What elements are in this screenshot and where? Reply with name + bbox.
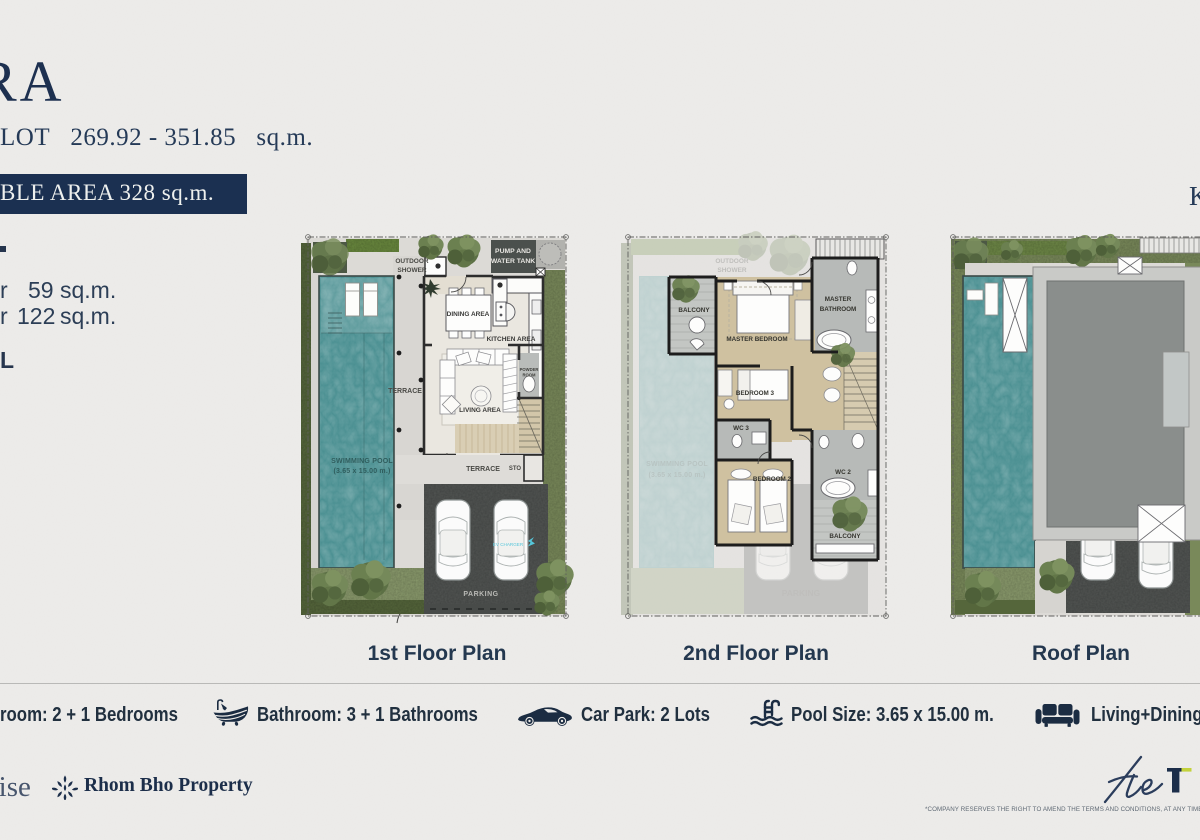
svg-text:BEDROOM 2: BEDROOM 2 — [753, 476, 792, 483]
svg-text:ROOM: ROOM — [522, 373, 536, 378]
svg-text:OUTDOOR: OUTDOOR — [715, 258, 749, 265]
svg-text:WC 3: WC 3 — [733, 425, 749, 432]
svg-text:MASTER: MASTER — [825, 296, 852, 303]
svg-text:SWIMMING POOL: SWIMMING POOL — [646, 461, 708, 468]
svg-text:PARKING: PARKING — [782, 588, 821, 598]
svg-text:(3.65 x 15.00 m.): (3.65 x 15.00 m.) — [648, 472, 705, 479]
svg-text:POWDER: POWDER — [520, 367, 539, 372]
svg-text:MASTER BEDROOM: MASTER BEDROOM — [726, 336, 787, 343]
svg-text:LIVING AREA: LIVING AREA — [459, 407, 501, 414]
svg-text:OUTDOOR: OUTDOOR — [395, 258, 429, 265]
svg-text:SWIMMING POOL: SWIMMING POOL — [331, 458, 393, 465]
svg-text:EV CHARGER: EV CHARGER — [493, 542, 524, 547]
svg-text:SHOWER: SHOWER — [717, 267, 747, 274]
svg-text:(3.65 x 15.00 m.): (3.65 x 15.00 m.) — [333, 468, 390, 475]
svg-text:WATER TANK: WATER TANK — [491, 258, 535, 265]
svg-text:STO: STO — [509, 466, 522, 472]
svg-text:DINING AREA: DINING AREA — [447, 311, 490, 318]
svg-text:BALCONY: BALCONY — [829, 533, 861, 540]
svg-text:SHOWER: SHOWER — [397, 267, 427, 274]
svg-text:KITCHEN AREA: KITCHEN AREA — [487, 336, 536, 343]
svg-text:TERRACE: TERRACE — [388, 388, 422, 395]
svg-text:BEDROOM 3: BEDROOM 3 — [736, 390, 775, 397]
svg-text:WC 2: WC 2 — [835, 469, 851, 476]
svg-text:BATHROOM: BATHROOM — [820, 306, 857, 313]
svg-text:PUMP AND: PUMP AND — [495, 248, 531, 255]
svg-text:BALCONY: BALCONY — [678, 307, 710, 314]
svg-text:PARKING: PARKING — [463, 591, 498, 598]
svg-text:TERRACE: TERRACE — [466, 466, 500, 473]
